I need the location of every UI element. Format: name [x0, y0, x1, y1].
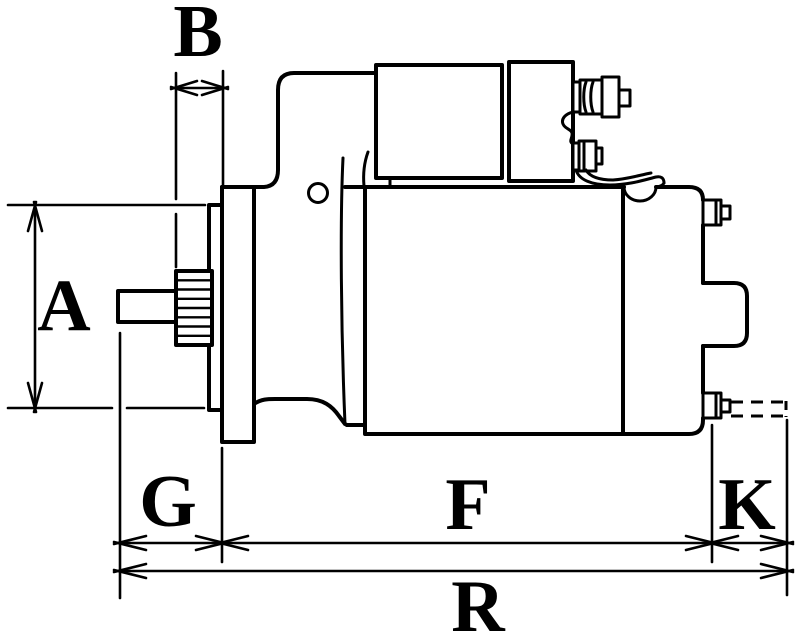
endcap-top-edge: [656, 187, 703, 200]
label-k: K: [718, 464, 776, 546]
motor-body: [345, 187, 787, 434]
rear-boss: [703, 283, 747, 346]
label-f: F: [445, 464, 490, 546]
solenoid-terminal-top: [573, 77, 630, 117]
housing-hole: [309, 184, 328, 203]
mounting-flange: [222, 187, 254, 442]
solenoid-terminal-lower: [573, 141, 602, 171]
motor-bottom-edge: [347, 418, 703, 434]
drive-housing-rear-curve: [341, 158, 345, 424]
hidden-bolt-dashes: [731, 401, 787, 417]
solenoid: [376, 62, 664, 201]
dimension-r: R: [114, 564, 793, 638]
label-r: R: [451, 566, 506, 638]
label-b: B: [173, 0, 222, 73]
through-bolt-bottom: [703, 393, 730, 418]
through-bolt-top: [703, 200, 730, 225]
drawing-canvas: A B G F K R: [0, 0, 800, 638]
drive-housing-bottom-profile: [254, 399, 365, 425]
drive-housing-front-curve: [364, 152, 368, 186]
label-a: A: [37, 265, 90, 347]
starter-motor-dimension-drawing: A B G F K R: [0, 0, 800, 638]
drive-shaft: [118, 291, 176, 322]
pinion-teeth: [176, 280, 212, 336]
pinion-gear: [176, 271, 212, 345]
label-g: G: [139, 461, 197, 543]
strap-grommet: [624, 183, 664, 201]
drive-housing-top-profile: [222, 73, 376, 187]
solenoid-body: [376, 65, 502, 178]
